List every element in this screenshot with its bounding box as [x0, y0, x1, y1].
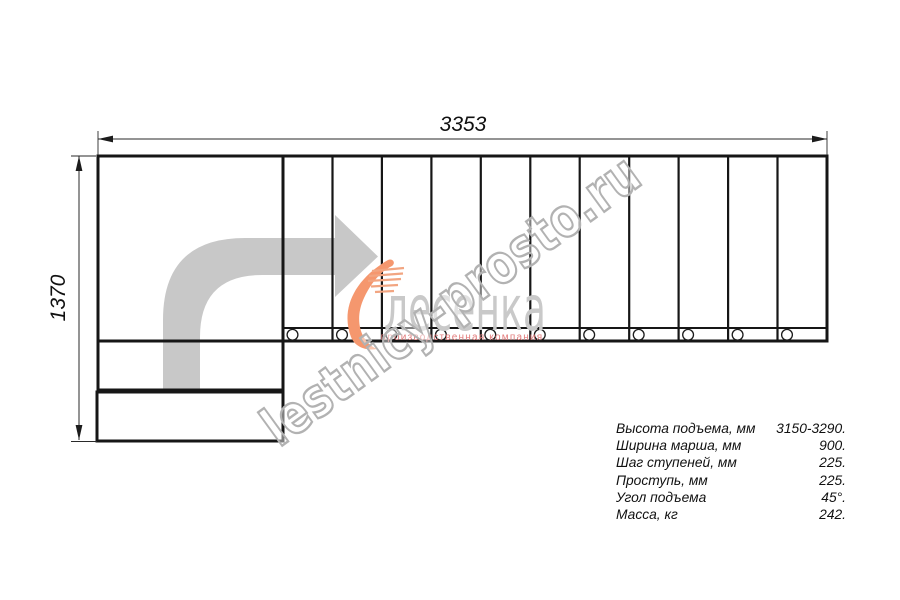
- spec-label: Шаг ступеней, мм: [616, 454, 737, 471]
- bolt-hole: [287, 329, 298, 340]
- spec-row: Проступь, мм 225.: [616, 472, 846, 489]
- spec-value: 225.: [819, 454, 846, 471]
- bolt-hole: [633, 329, 644, 340]
- spec-value: 242.: [819, 506, 846, 523]
- spec-row: Высота подъема, мм 3150-3290.: [616, 420, 846, 437]
- dimension-top-value: 3353: [440, 113, 487, 136]
- spec-value: 3150-3290.: [776, 420, 846, 437]
- spec-label: Проступь, мм: [616, 472, 708, 489]
- spec-value: 45°.: [821, 489, 846, 506]
- bolt-hole: [584, 329, 595, 340]
- spec-row: Масса, кг 242.: [616, 506, 846, 523]
- bolt-hole: [732, 329, 743, 340]
- dim-arrow-down-icon: [76, 425, 83, 440]
- spec-label: Масса, кг: [616, 506, 678, 523]
- bolt-hole: [683, 329, 694, 340]
- dim-arrow-up-icon: [76, 156, 83, 171]
- spec-value: 900.: [819, 437, 846, 454]
- spec-label: Угол подъема: [616, 489, 706, 506]
- spec-row: Ширина марша, мм 900.: [616, 437, 846, 454]
- lower-step-2: [97, 392, 283, 441]
- dimension-left: 1370: [47, 156, 97, 442]
- dimension-top: 3353: [98, 113, 827, 155]
- spec-row: Шаг ступеней, мм 225.: [616, 454, 846, 471]
- spec-table: Высота подъема, мм 3150-3290. Ширина мар…: [616, 420, 846, 523]
- dimension-left-value: 1370: [47, 274, 70, 321]
- spec-label: Ширина марша, мм: [616, 437, 741, 454]
- site-watermark: lestnicy-prosto.ru: [250, 142, 653, 459]
- dim-arrow-right-icon: [812, 136, 827, 143]
- spec-label: Высота подъема, мм: [616, 420, 755, 437]
- bolt-hole: [782, 329, 793, 340]
- dim-arrow-left-icon: [98, 136, 113, 143]
- spec-value: 225.: [819, 472, 846, 489]
- spec-row: Угол подъема 45°.: [616, 489, 846, 506]
